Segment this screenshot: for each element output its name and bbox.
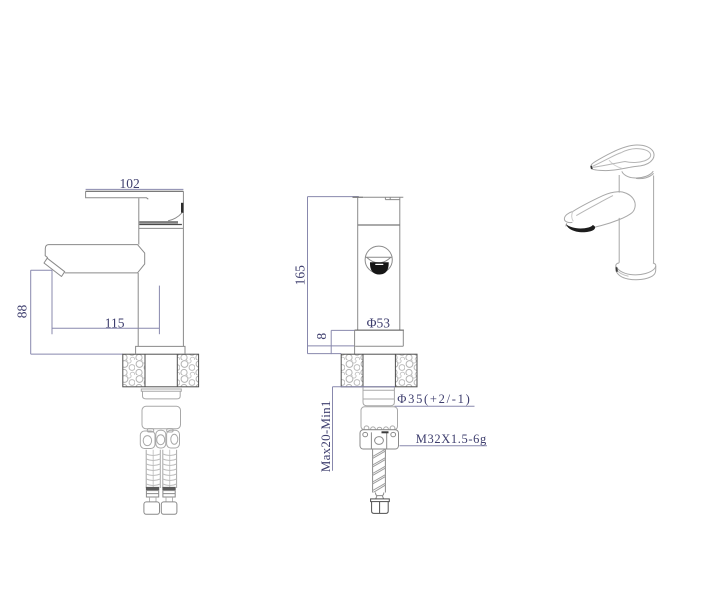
svg-text:115: 115	[105, 315, 125, 330]
svg-text:M32X1.5-6g: M32X1.5-6g	[416, 432, 487, 446]
svg-text:Max20-Min1: Max20-Min1	[318, 400, 333, 472]
svg-text:8: 8	[314, 333, 329, 340]
svg-text:88: 88	[15, 305, 30, 319]
svg-text:Φ53: Φ53	[367, 315, 391, 330]
svg-text:165: 165	[293, 265, 308, 286]
svg-text:Φ35(+2/-1): Φ35(+2/-1)	[397, 392, 471, 406]
